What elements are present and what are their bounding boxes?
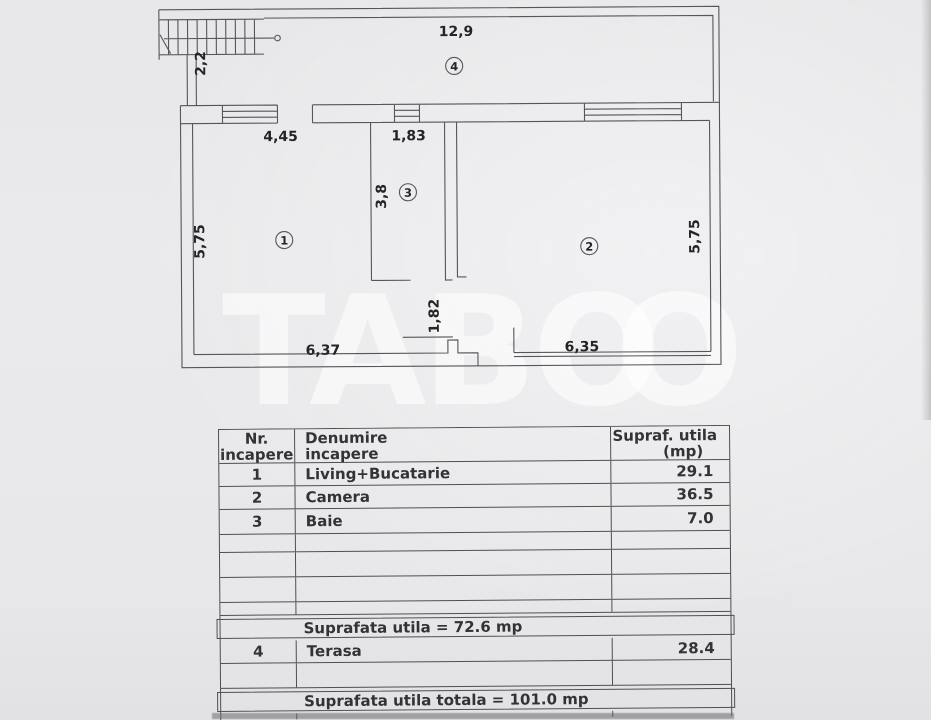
row3-name: Baie (296, 507, 612, 533)
dim-bath-width: 1,83 (391, 128, 426, 144)
header-suprafata: Supraf. utila (mp) (611, 426, 729, 460)
empty-row (221, 660, 731, 689)
room-number-camera: 2 (585, 240, 593, 254)
dim-living-bottom: 6,37 (306, 343, 341, 359)
empty-row (220, 599, 730, 616)
row4-name: Terasa (297, 638, 613, 662)
header-suprafata-line1: Supraf. utila (612, 427, 717, 444)
dim-stair-width: 2,2 (193, 51, 209, 76)
photo-bottom-shadow (212, 713, 734, 719)
header-nr-incapere: Nr. incapere (219, 429, 295, 463)
header-nr-line2: incapere (220, 446, 293, 463)
staircase (159, 19, 274, 60)
room-number-terrace: 4 (450, 59, 458, 73)
row1-nr: 1 (219, 463, 295, 486)
subtotal-row: Suprafata utila = 72.6 mp (216, 615, 734, 639)
photo-right-edge-shade (921, 0, 931, 420)
scanned-floor-plan-page: { "watermark": { "part1": "TABO", "part2… (0, 0, 931, 720)
subtotal-text: Suprafata utila = 72.6 mp (303, 618, 522, 638)
row4-nr: 4 (221, 640, 297, 663)
header-nr-line1: Nr. (245, 430, 269, 446)
header-denumire-line1: Denumire (305, 429, 387, 446)
room-number-bath: 3 (404, 186, 412, 200)
row2-nr: 2 (219, 486, 295, 509)
dim-camera-depth: 5,75 (687, 219, 703, 254)
top-wall-left (180, 105, 277, 124)
dim-hall-depth: 1,82 (427, 299, 443, 334)
dim-living-depth: 5,75 (192, 224, 208, 259)
dim-terrace-width: 12,9 (439, 24, 474, 40)
dim-bath-depth: 3,8 (374, 184, 390, 209)
room-areas-table: Nr. incapere Denumire incapere Supraf. u… (212, 425, 738, 720)
row2-area: 36.5 (611, 483, 729, 506)
header-suprafata-line2: (mp) (663, 443, 717, 459)
row4-area: 28.4 (613, 637, 731, 660)
dim-living-width: 4,45 (263, 129, 298, 145)
table-header-row: Nr. incapere Denumire incapere Supraf. u… (219, 426, 729, 464)
total-text: Suprafata utila totala = 101.0 mp (304, 690, 589, 710)
row1-area: 29.1 (611, 460, 729, 483)
inner-side-walls (193, 120, 711, 354)
floor-plan-drawing: 12,9 2,2 4,45 1,83 3,8 5,75 5,75 1,82 6,… (0, 0, 931, 433)
top-wall-right (312, 102, 719, 122)
dim-camera-bottom: 6,35 (565, 339, 600, 355)
terrace-inner-wall (264, 15, 714, 104)
row3-area: 7.0 (612, 506, 730, 531)
bottom-wall-inner (194, 338, 711, 367)
row1-name: Living+Bucatarie (295, 461, 611, 485)
row2-name: Camera (295, 484, 611, 508)
total-row: Suprafata utila totala = 101.0 mp (217, 688, 735, 712)
header-denumire: Denumire incapere (295, 427, 611, 462)
row3-nr: 3 (220, 509, 296, 534)
header-denumire-line2: incapere (305, 445, 387, 462)
stair-direction-marker (275, 35, 281, 41)
room-number-living: 1 (280, 233, 288, 247)
